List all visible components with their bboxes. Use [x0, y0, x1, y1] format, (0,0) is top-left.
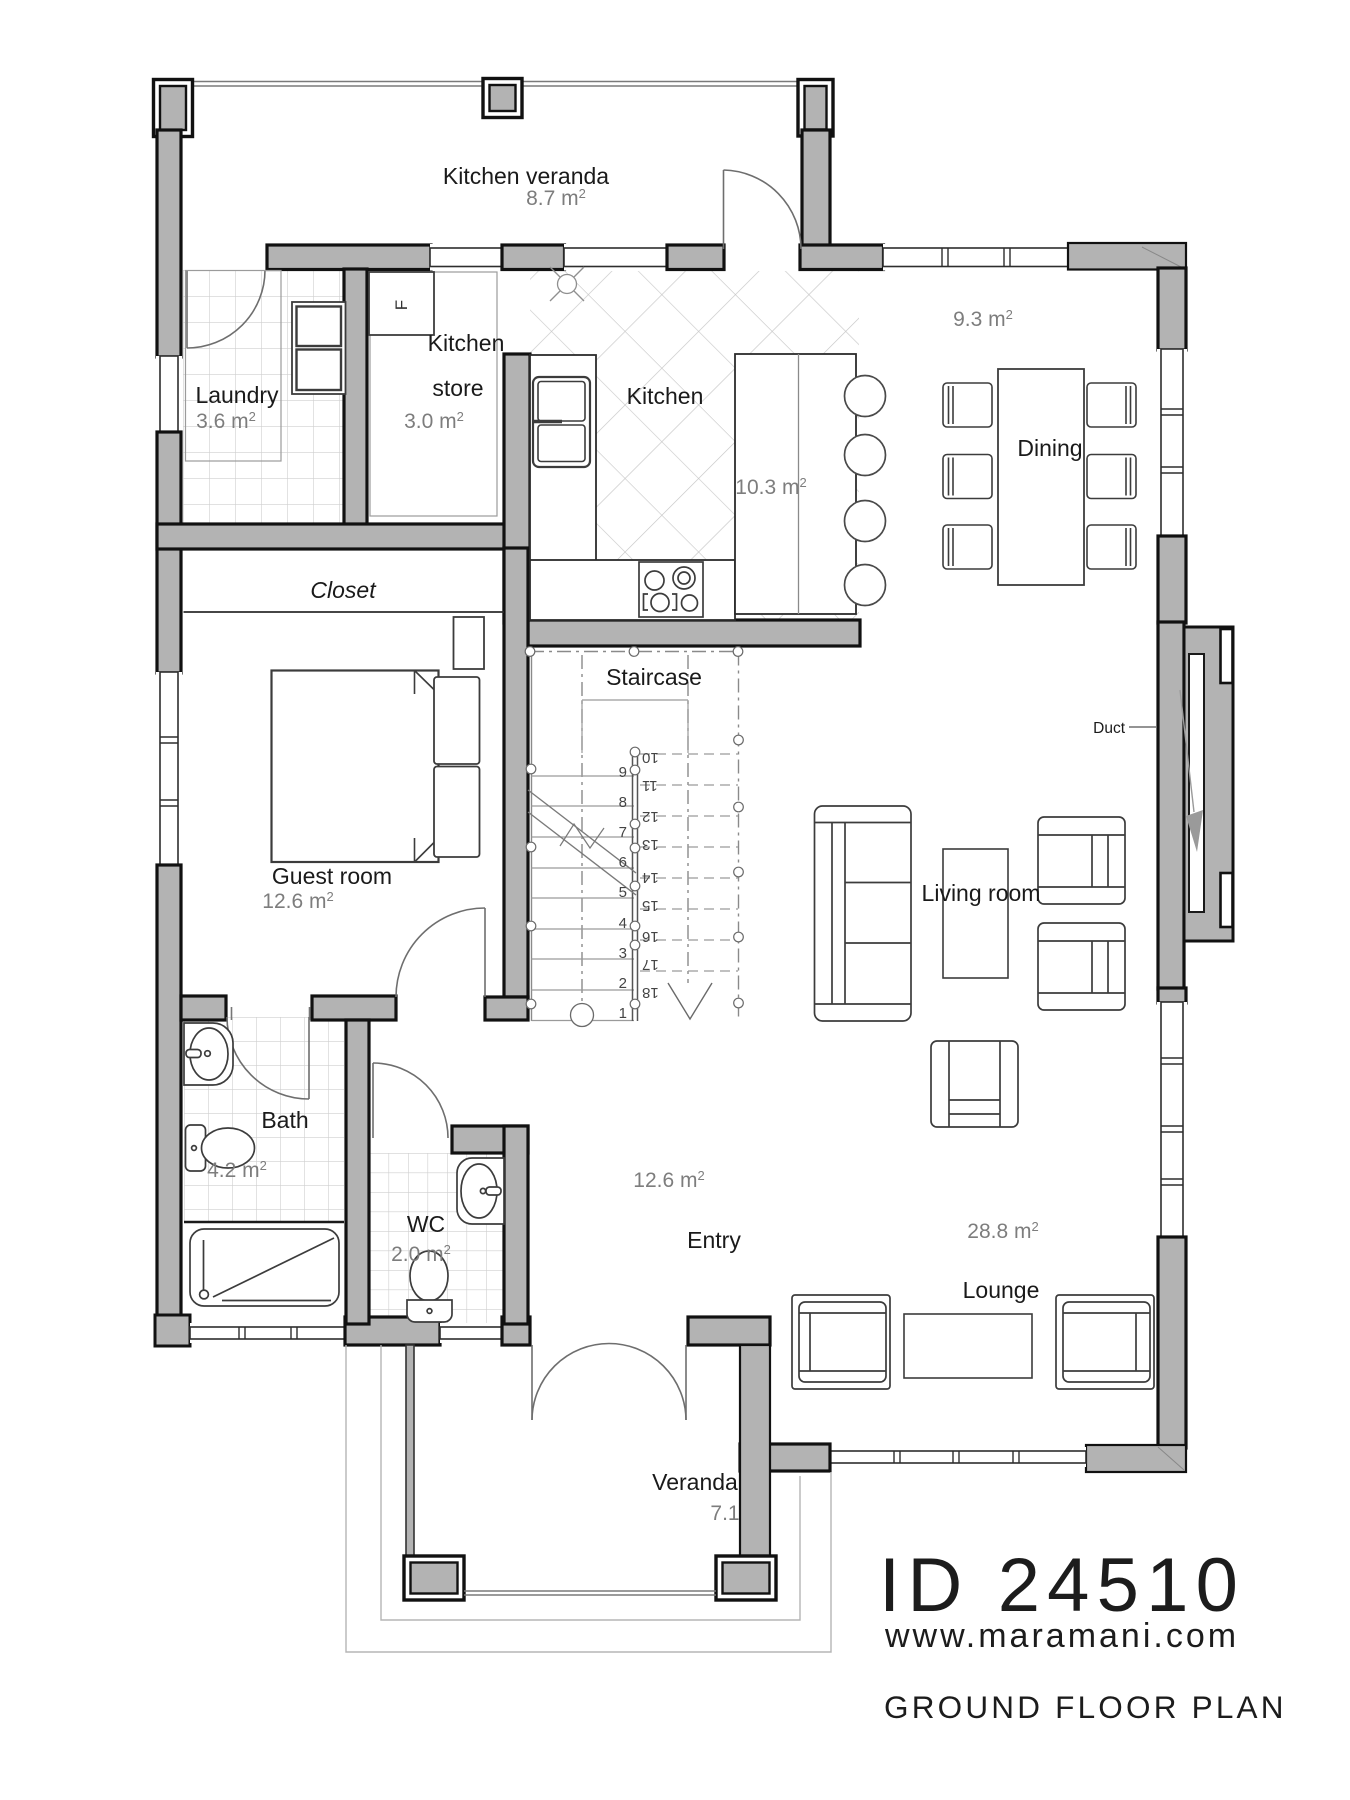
svg-text:www.maramani.com: www.maramani.com: [884, 1617, 1239, 1655]
svg-text:Lounge: Lounge: [963, 1277, 1040, 1303]
svg-text:4.2 m2: 4.2 m2: [207, 1158, 267, 1182]
svg-text:16: 16: [642, 928, 659, 945]
svg-text:Duct: Duct: [1093, 720, 1126, 737]
svg-text:GROUND FLOOR PLAN: GROUND FLOOR PLAN: [884, 1689, 1287, 1725]
svg-text:7: 7: [619, 824, 627, 841]
svg-text:17: 17: [642, 956, 659, 973]
svg-text:Staircase: Staircase: [606, 664, 702, 690]
svg-text:Entry: Entry: [687, 1227, 741, 1253]
svg-text:12.6 m2: 12.6 m2: [262, 889, 333, 913]
svg-text:1: 1: [619, 1005, 627, 1022]
svg-text:3.6 m2: 3.6 m2: [196, 409, 256, 433]
svg-text:10: 10: [642, 749, 659, 766]
svg-text:Veranda: Veranda: [652, 1469, 738, 1495]
svg-text:10.3 m2: 10.3 m2: [735, 475, 806, 499]
svg-text:Laundry: Laundry: [195, 382, 279, 408]
svg-text:11: 11: [642, 777, 658, 794]
svg-text:9.3 m2: 9.3 m2: [953, 307, 1013, 331]
svg-text:8.7 m2: 8.7 m2: [526, 186, 586, 210]
svg-text:Kitchen: Kitchen: [627, 383, 704, 409]
svg-text:Guest room: Guest room: [272, 863, 392, 889]
svg-text:3.0 m2: 3.0 m2: [404, 409, 464, 433]
svg-text:store: store: [432, 375, 483, 401]
svg-text:12.6 m2: 12.6 m2: [633, 1168, 704, 1192]
svg-text:9: 9: [619, 764, 627, 781]
svg-text:15: 15: [642, 897, 659, 914]
svg-text:28.8 m2: 28.8 m2: [967, 1219, 1038, 1243]
svg-text:Bath: Bath: [261, 1107, 308, 1133]
svg-text:12: 12: [642, 808, 659, 825]
svg-text:F: F: [392, 300, 411, 310]
svg-text:4: 4: [619, 915, 627, 932]
svg-text:3: 3: [619, 945, 627, 962]
svg-text:WC: WC: [407, 1211, 445, 1237]
svg-text:Dining: Dining: [1017, 435, 1082, 461]
svg-text:13: 13: [642, 836, 659, 853]
svg-text:7.1: 7.1: [710, 1502, 739, 1525]
svg-text:Living room: Living room: [922, 880, 1041, 906]
svg-text:6: 6: [619, 854, 627, 871]
svg-text:8: 8: [619, 794, 627, 811]
svg-text:Kitchen: Kitchen: [428, 330, 505, 356]
svg-text:2: 2: [619, 975, 627, 992]
svg-text:Closet: Closet: [310, 577, 377, 603]
svg-text:18: 18: [642, 984, 659, 1001]
svg-text:14: 14: [642, 869, 659, 886]
svg-text:5: 5: [619, 884, 627, 901]
svg-text:ID 24510: ID 24510: [879, 1543, 1245, 1628]
svg-text:2.0 m2: 2.0 m2: [391, 1242, 451, 1266]
